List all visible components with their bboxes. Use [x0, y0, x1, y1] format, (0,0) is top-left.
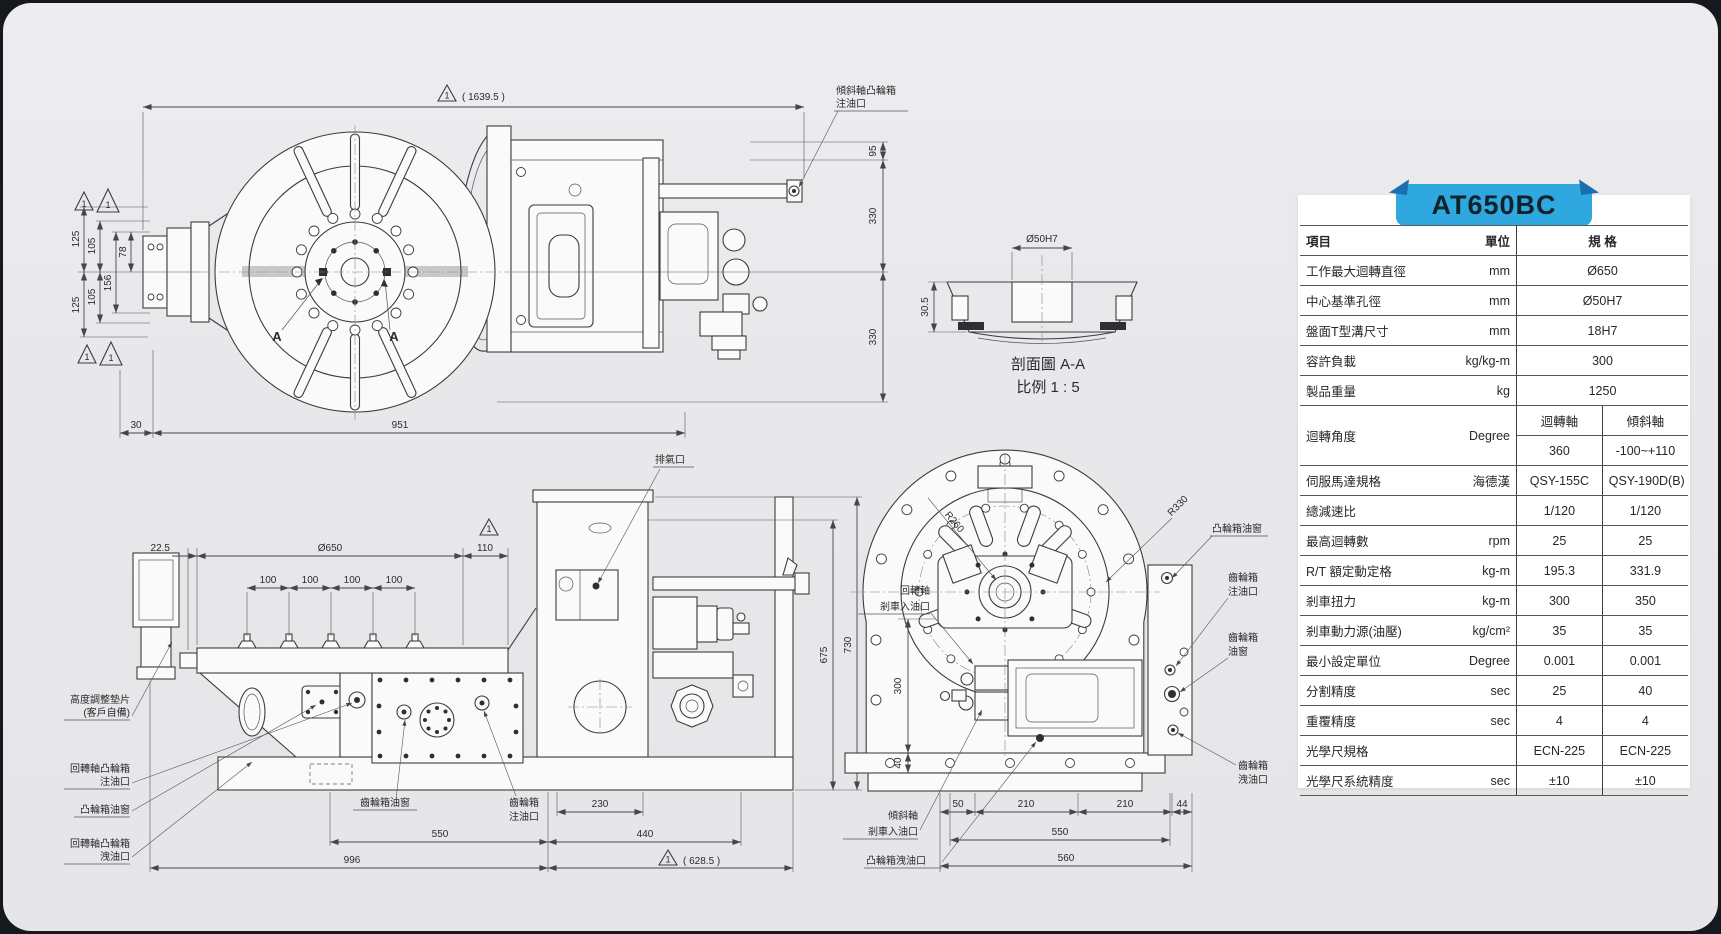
rear-gear-window-label: 齒輪箱: [1228, 631, 1258, 644]
model-badge-wing-left: [1389, 177, 1409, 195]
shim-label2: (客戶自備): [83, 706, 130, 719]
model-badge-wing-right: [1579, 177, 1599, 195]
table-row: 剎車動力源(油壓) kg/cm² 35 35: [1300, 616, 1688, 646]
spec-table: 項目 單位 規 格 工作最大迴轉直徑 mm Ø650 中心基準孔徑 mm Ø50…: [1300, 225, 1688, 796]
subheader-rotary-axis: 迴轉軸: [1517, 406, 1603, 436]
side-flag: 1: [486, 524, 491, 534]
col-header-spec: 規 格: [1517, 226, 1689, 256]
table-row: R/T 額定動定格 kg-m 195.3 331.9: [1300, 556, 1688, 586]
dim-650: Ø650: [318, 543, 343, 554]
dim-730: 730: [843, 636, 854, 653]
section-mark-a-left: A: [272, 329, 282, 344]
table-row: 剎車扭力 kg-m 300 350: [1300, 586, 1688, 616]
rotary-cam-drain-label2: 洩油口: [100, 850, 130, 863]
tilt-brake-label2: 剎車入油口: [868, 825, 918, 838]
cam-window-label: 凸輪箱油窗: [80, 803, 130, 816]
subheader-tilt-axis: 傾斜軸: [1602, 406, 1688, 436]
dim-210b: 210: [1117, 799, 1134, 810]
col-header-item: 項目: [1300, 226, 1440, 256]
dim-330-bottom: 330: [868, 328, 879, 345]
dim-628-5: ( 628.5 ): [683, 856, 720, 867]
tilt-cam-fill-label2: 注油口: [836, 97, 866, 110]
dim-22-5: 22.5: [151, 543, 171, 554]
flag-note: 1: [444, 91, 449, 101]
table-row: 分割精度 sec 25 40: [1300, 676, 1688, 706]
table-row-angle-subheader: 迴轉角度 Degree 迴轉軸 傾斜軸: [1300, 406, 1688, 436]
section-view-drawing: Ø50H7 30.5 剖面圖 A-A 比例 1 : 5: [920, 234, 1137, 396]
table-row: 光學尺規格 ECN-225 ECN-225: [1300, 736, 1688, 766]
rear-gear-drain-label2: 洩油口: [1238, 773, 1268, 786]
table-row: 容許負載 kg/kg-m 300: [1300, 346, 1688, 376]
dim-560: 560: [1058, 853, 1075, 864]
dim-105b: 105: [87, 288, 98, 305]
spec-header-row: 項目 單位 規 格: [1300, 226, 1688, 256]
gear-window-label: 齒輪箱油窗: [360, 796, 410, 809]
dim-300: 300: [893, 677, 904, 694]
rear-view-drawing: [845, 450, 1192, 791]
dim-110: 110: [477, 543, 493, 554]
tilt-cam-fill-label: 傾斜軸凸輪箱: [836, 84, 896, 97]
rear-gear-fill-label2: 注油口: [1228, 585, 1258, 598]
table-row: 光學尺系統精度 sec ±10 ±10: [1300, 766, 1688, 796]
dim-550-rear: 550: [1052, 827, 1069, 838]
table-row: 中心基準孔徑 mm Ø50H7: [1300, 286, 1688, 316]
dim-105a: 105: [87, 237, 98, 254]
table-row: 工作最大迴轉直徑 mm Ø650: [1300, 256, 1688, 286]
side-view-drawing: [133, 490, 809, 790]
dim-78: 78: [118, 246, 129, 258]
rear-cam-window-label: 凸輪箱油窗: [1212, 522, 1262, 535]
gear-fill-label2: 注油口: [509, 810, 539, 823]
table-row: 最高迴轉數 rpm 25 25: [1300, 526, 1688, 556]
datum-flag-2: 1: [105, 200, 110, 210]
dim-675: 675: [819, 646, 830, 663]
dim-125a: 125: [71, 230, 82, 247]
table-row: 製品重量 kg 1250: [1300, 376, 1688, 406]
radius-r330: R330: [1166, 494, 1191, 519]
dim-210a: 210: [1018, 799, 1035, 810]
dim-40: 40: [893, 757, 904, 769]
dim-100-1: 100: [260, 575, 277, 586]
gear-fill-label: 齒輪箱: [509, 796, 539, 809]
table-row: 伺服馬達規格 海德漢 QSY-155C QSY-190D(B): [1300, 466, 1688, 496]
rotary-cam-fill-label2: 注油口: [100, 775, 130, 788]
dim-30: 30: [130, 420, 142, 431]
dim-951: 951: [392, 420, 409, 431]
dim-550-side: 550: [432, 829, 449, 840]
table-row: 最小設定單位 Degree 0.001 0.001: [1300, 646, 1688, 676]
section-title: 剖面圖 A-A: [1011, 356, 1085, 373]
side-flag-2: 1: [665, 855, 670, 865]
rotary-brake-label: 回轉軸: [900, 584, 930, 597]
cam-drain-label: 凸輪箱洩油口: [866, 854, 926, 867]
rotary-cam-drain-label: 回轉軸凸輪箱: [70, 837, 130, 850]
table-row: 盤面T型溝尺寸 mm 18H7: [1300, 316, 1688, 346]
dim-100-4: 100: [386, 575, 403, 586]
dim-overall: ( 1639.5 ): [462, 92, 505, 103]
front-view-drawing: [143, 125, 802, 420]
dim-44: 44: [1176, 799, 1188, 810]
dim-95: 95: [868, 145, 879, 157]
col-header-unit: 單位: [1440, 226, 1517, 256]
table-row: 總減速比 1/120 1/120: [1300, 496, 1688, 526]
dim-996: 996: [344, 855, 361, 866]
datum-flag-4: 1: [108, 353, 113, 363]
rotary-brake-label2: 剎車入油口: [880, 600, 930, 613]
section-mark-a-right: A: [389, 329, 399, 344]
table-row: 重覆精度 sec 4 4: [1300, 706, 1688, 736]
shim-label: 高度調整墊片: [70, 693, 130, 706]
t-slot-studs: [238, 634, 424, 648]
datum-flag-1: 1: [81, 199, 86, 209]
dim-bore-50h7: Ø50H7: [1026, 234, 1058, 245]
dim-30-5: 30.5: [920, 297, 931, 317]
dim-156: 156: [103, 274, 114, 291]
rear-gear-fill-label: 齒輪箱: [1228, 571, 1258, 584]
dim-125b: 125: [71, 296, 82, 313]
dim-100-3: 100: [344, 575, 361, 586]
dim-100-2: 100: [302, 575, 319, 586]
rear-gear-window-label2: 油窗: [1228, 645, 1248, 658]
exhaust-port-label: 排氣口: [655, 453, 685, 466]
tilt-brake-label: 傾斜軸: [888, 809, 918, 822]
section-scale: 比例 1 : 5: [1016, 379, 1079, 396]
model-badge: AT650BC: [1396, 184, 1592, 226]
dim-230: 230: [592, 799, 609, 810]
model-name: AT650BC: [1431, 190, 1556, 220]
dim-440: 440: [637, 829, 654, 840]
rotary-cam-fill-label: 回轉軸凸輪箱: [70, 762, 130, 775]
dim-330-top: 330: [868, 207, 879, 224]
dim-50: 50: [952, 799, 964, 810]
rear-gear-drain-label: 齒輪箱: [1238, 759, 1268, 772]
datum-flag-3: 1: [84, 352, 89, 362]
